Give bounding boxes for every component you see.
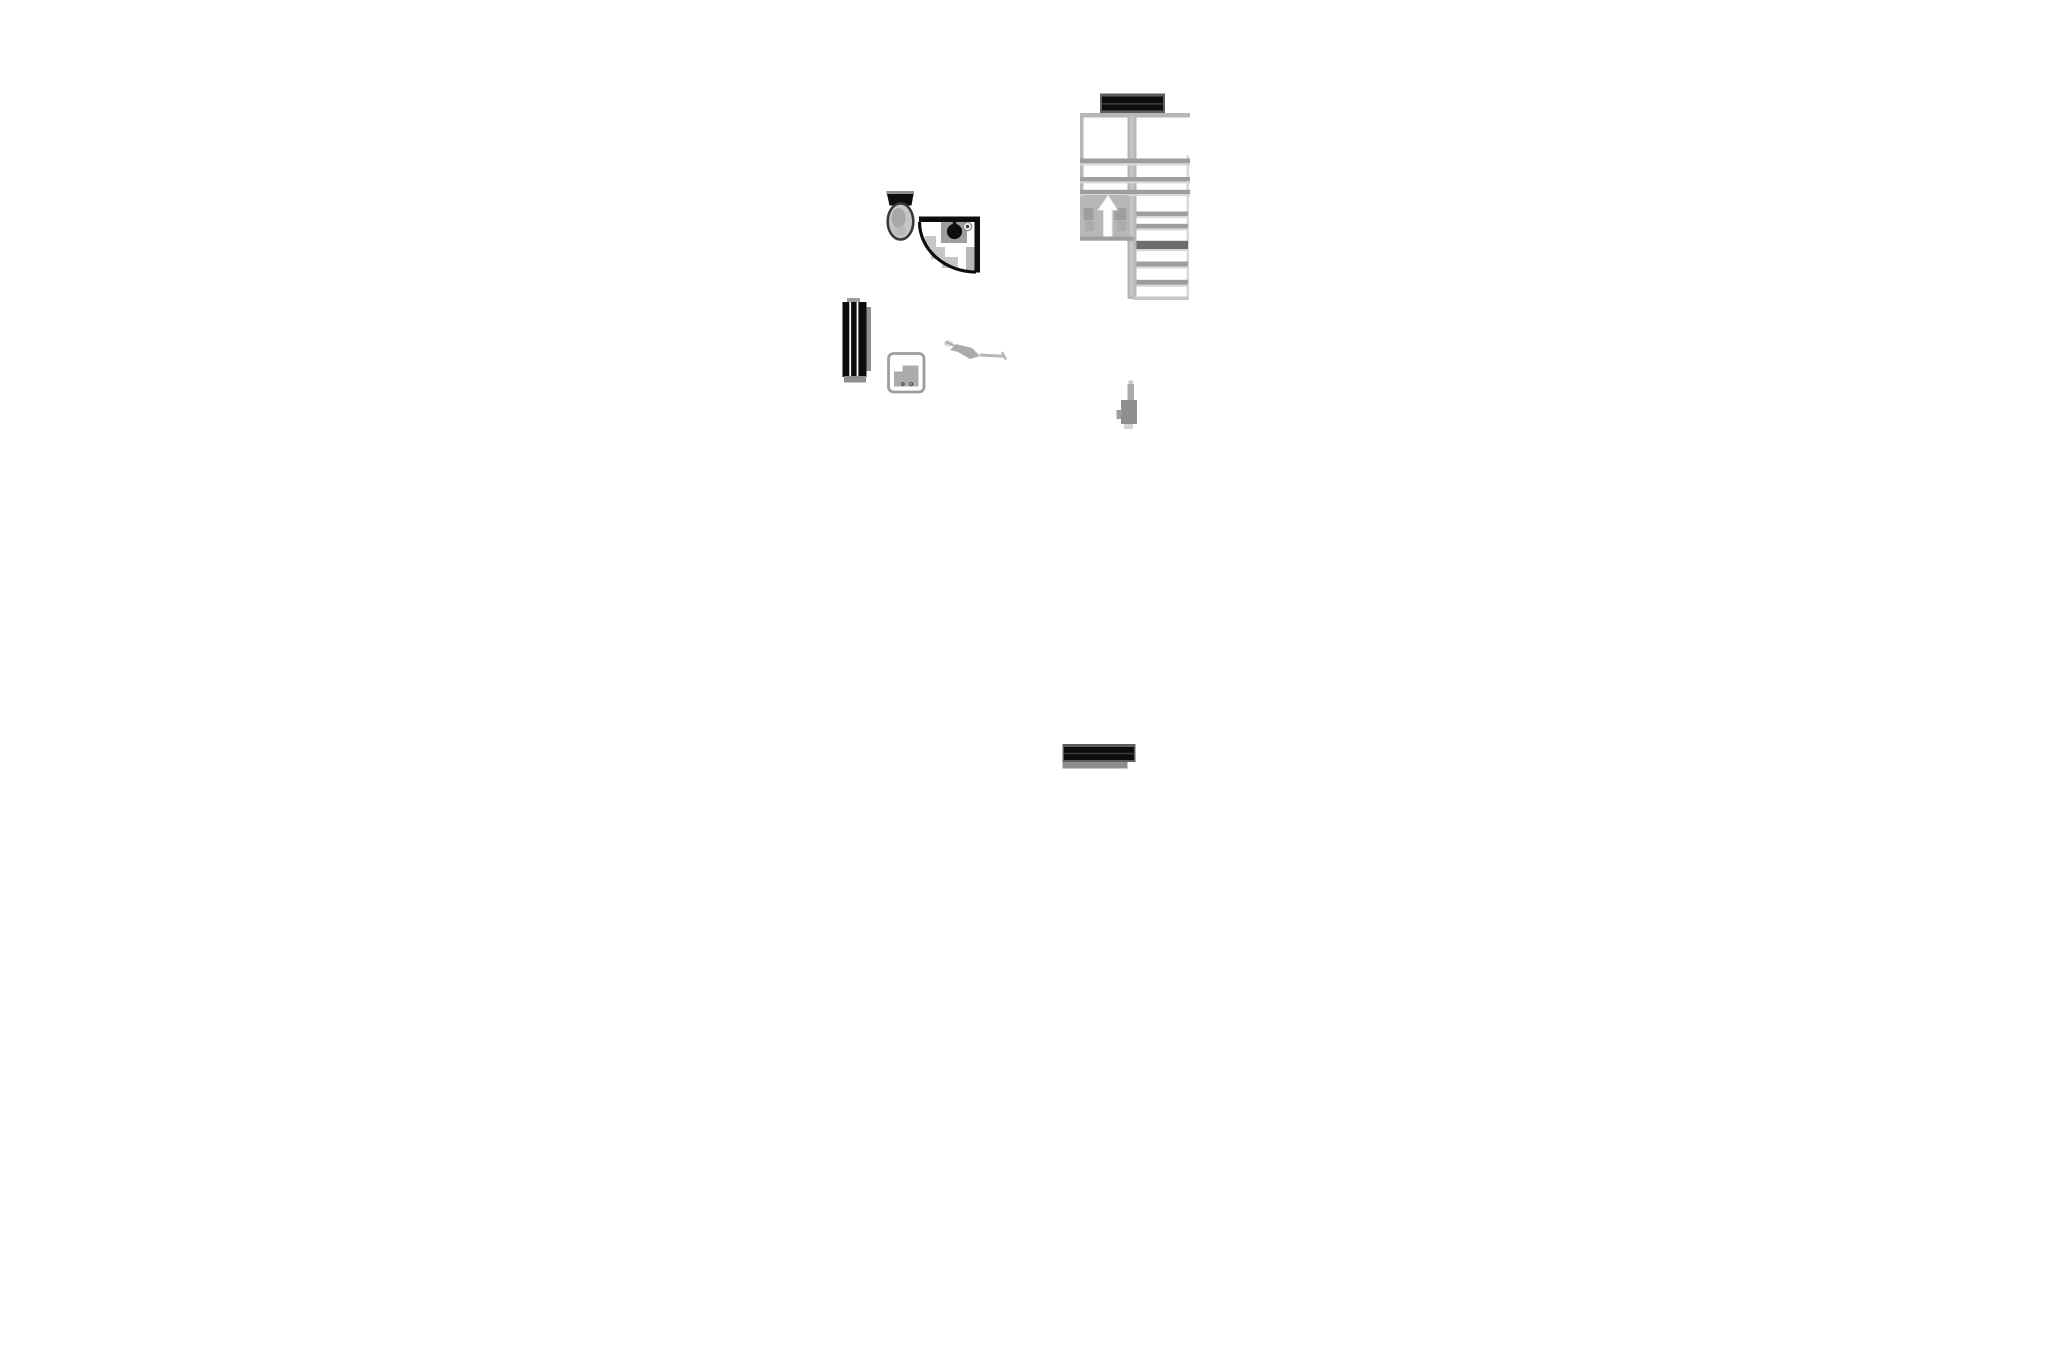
canvas-background bbox=[0, 0, 2057, 1371]
wall-divider-line bbox=[1064, 753, 1134, 755]
stair-tread-highlight bbox=[1137, 285, 1189, 287]
stair-tread-highlight bbox=[1080, 181, 1190, 183]
valve-body bbox=[1121, 400, 1137, 424]
stair-tread-highlight bbox=[1137, 267, 1189, 269]
shower-side-wall bbox=[975, 217, 981, 273]
radiator-side-cap bbox=[867, 307, 872, 371]
radiator-body bbox=[843, 302, 867, 377]
stair-landing-block bbox=[1117, 221, 1126, 231]
valve-side-notch bbox=[1117, 410, 1122, 419]
stair-tread-highlight bbox=[1137, 216, 1189, 218]
stair-tread bbox=[1137, 262, 1189, 267]
stair-landing-block bbox=[1084, 208, 1094, 220]
toilet-lid-cap bbox=[887, 191, 915, 195]
radiator-bottom-cap bbox=[844, 376, 866, 383]
washbasin: washbasin bbox=[889, 354, 925, 393]
stair-tread-highlight bbox=[1080, 163, 1190, 165]
stair-right-flight-bottom-edge bbox=[1133, 297, 1189, 301]
radiator-fin-gap bbox=[849, 302, 851, 377]
valve-base-shadow bbox=[1124, 424, 1133, 429]
floor-plan-canvas: wall segment staircase with up direction… bbox=[0, 0, 2057, 1371]
shower-back-wall bbox=[919, 217, 980, 223]
wall-under-strip bbox=[1063, 762, 1128, 769]
stair-tread-highlight bbox=[1137, 228, 1189, 230]
toilet-bowl-shading bbox=[894, 226, 906, 236]
basin-tap-knob-dot bbox=[902, 383, 903, 384]
toilet: toilet bbox=[887, 191, 915, 240]
stair-tread-dark bbox=[1137, 241, 1189, 249]
shower-tray-shading bbox=[966, 247, 975, 270]
stair-tread bbox=[1080, 177, 1190, 181]
stair-tread bbox=[1080, 159, 1190, 164]
shower-head-icon-dot bbox=[966, 225, 969, 228]
floor-plan-svg: wall segment staircase with up direction… bbox=[0, 0, 2057, 1371]
shower-drain bbox=[947, 224, 962, 239]
stair-mid-wall-highlight bbox=[1130, 116, 1134, 296]
basin-tap-knob-dot bbox=[911, 383, 912, 384]
stair-left-flight-bottom-edge bbox=[1080, 237, 1134, 241]
stair-landing-block bbox=[1085, 221, 1094, 231]
valve-stem bbox=[1128, 384, 1135, 402]
faucet-spout bbox=[980, 355, 1004, 356]
radiator: radiator bbox=[843, 298, 872, 383]
stair-tread bbox=[1137, 224, 1189, 229]
stair-tread bbox=[1137, 212, 1189, 217]
stair-left-edge bbox=[1080, 113, 1084, 239]
wall-segment-top: wall segment bbox=[1100, 94, 1165, 114]
wall-segment-bottom: wall segment bbox=[1063, 744, 1136, 769]
stair-tread bbox=[1137, 280, 1189, 285]
radiator-fin-gap bbox=[857, 302, 859, 377]
wall-divider-line bbox=[1102, 103, 1163, 105]
stair-tread-highlight bbox=[1137, 249, 1189, 251]
stair-tread bbox=[1080, 190, 1190, 194]
toilet-bowl-shading bbox=[892, 208, 906, 228]
